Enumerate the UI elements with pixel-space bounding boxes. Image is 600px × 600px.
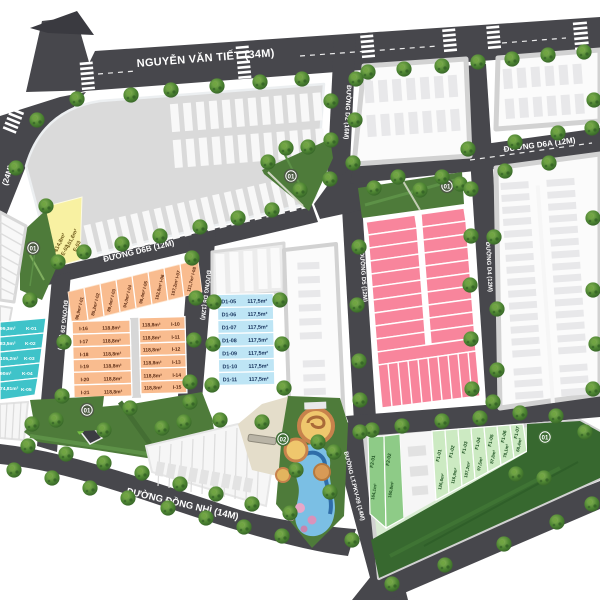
svg-text:117,5m²: 117,5m² (248, 351, 268, 357)
svg-text:I-10: I-10 (171, 322, 180, 328)
svg-text:118,8m²: 118,8m² (103, 351, 122, 357)
svg-text:D1-06: D1-06 (222, 312, 237, 318)
svg-text:117,5m²: 117,5m² (249, 377, 269, 383)
svg-text:I-14: I-14 (172, 373, 181, 379)
svg-text:I-16: I-16 (79, 326, 88, 332)
svg-text:I-19: I-19 (80, 364, 89, 370)
svg-text:99,3m²: 99,3m² (0, 326, 16, 332)
svg-text:D1-07: D1-07 (222, 325, 237, 331)
svg-text:118,8m²: 118,8m² (142, 335, 161, 341)
svg-text:74,81m²: 74,81m² (0, 386, 19, 392)
svg-text:I-18: I-18 (80, 352, 89, 358)
svg-text:K-03: K-03 (24, 356, 35, 362)
svg-text:I-21: I-21 (81, 390, 90, 396)
svg-text:118,8m²: 118,8m² (103, 376, 122, 382)
svg-text:105,2m²: 105,2m² (0, 356, 19, 362)
svg-text:02: 02 (280, 437, 287, 443)
svg-text:01: 01 (542, 435, 549, 441)
svg-text:117,5m²: 117,5m² (248, 338, 268, 344)
svg-text:90m²: 90m² (0, 371, 12, 377)
svg-text:117,5m²: 117,5m² (248, 325, 268, 331)
svg-text:I-15: I-15 (173, 385, 182, 391)
svg-text:118,8m²: 118,8m² (102, 325, 121, 331)
svg-text:118,8m²: 118,8m² (103, 363, 122, 369)
svg-text:D1-09: D1-09 (222, 351, 237, 357)
svg-text:I-20: I-20 (80, 377, 89, 383)
svg-text:01: 01 (444, 184, 451, 190)
svg-text:I-17: I-17 (79, 339, 88, 345)
svg-text:D1-08: D1-08 (222, 338, 237, 344)
svg-text:01: 01 (288, 174, 295, 180)
svg-text:117,5m²: 117,5m² (248, 364, 268, 370)
svg-text:I-13: I-13 (172, 360, 181, 366)
svg-text:83,5m²: 83,5m² (0, 341, 16, 347)
svg-text:118,8m²: 118,8m² (144, 385, 163, 391)
svg-text:118,8m²: 118,8m² (102, 338, 121, 344)
svg-text:D1-11: D1-11 (223, 377, 237, 383)
svg-text:I-11: I-11 (171, 335, 180, 341)
svg-text:117,5m²: 117,5m² (247, 299, 267, 305)
svg-text:01: 01 (84, 408, 91, 414)
svg-text:01: 01 (30, 246, 37, 252)
svg-text:I-12: I-12 (172, 347, 181, 353)
svg-text:117,5m²: 117,5m² (248, 312, 268, 318)
svg-text:118,8m²: 118,8m² (142, 322, 161, 328)
svg-text:K-05: K-05 (21, 387, 32, 393)
svg-text:118,8m²: 118,8m² (104, 389, 123, 395)
svg-text:D1-10: D1-10 (222, 364, 237, 370)
svg-text:K-01: K-01 (26, 326, 37, 332)
svg-text:K-04: K-04 (22, 371, 33, 377)
svg-text:118,8m²: 118,8m² (143, 347, 162, 353)
svg-text:118,8m²: 118,8m² (143, 360, 162, 366)
svg-text:118,8m²: 118,8m² (143, 373, 162, 379)
svg-text:D1-05: D1-05 (221, 299, 236, 305)
svg-text:K-02: K-02 (25, 341, 36, 347)
